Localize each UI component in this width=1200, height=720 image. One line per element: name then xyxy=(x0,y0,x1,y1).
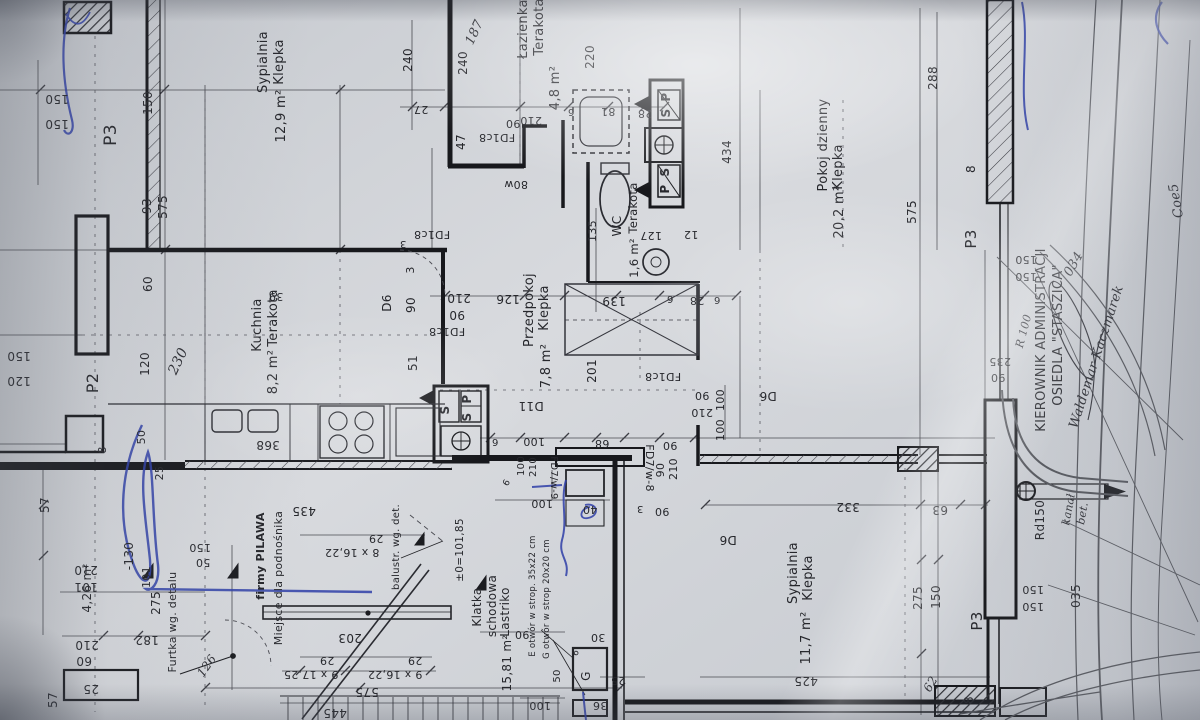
dim: 332 xyxy=(836,500,860,514)
door-code: D6 xyxy=(380,294,394,311)
shaft-label: G xyxy=(579,671,593,681)
handwritten-note: bet. xyxy=(1074,501,1091,526)
dim: 101 xyxy=(140,566,153,588)
dim: 288 xyxy=(926,66,940,90)
axis-label: P2 xyxy=(83,373,102,393)
dim: 210 xyxy=(520,114,542,127)
dim: 210 xyxy=(667,458,680,480)
dim: 150 xyxy=(7,349,31,363)
door-code: FD7/w-9 xyxy=(548,456,559,499)
dim: 100 xyxy=(714,389,727,411)
dim: 120 xyxy=(138,352,152,376)
dim: 210 xyxy=(74,563,98,577)
dim: 3 xyxy=(404,266,417,273)
dim: 275 xyxy=(149,591,163,615)
room-label: Przedpokoj xyxy=(522,273,537,347)
dim: 8 xyxy=(96,446,109,453)
axis-label: P3 xyxy=(962,229,980,248)
dim: 25 xyxy=(83,682,99,696)
dim: 100 xyxy=(523,435,545,448)
dim: 90 xyxy=(695,389,710,402)
room-area: 15,81 m² xyxy=(500,634,514,691)
dim: 368 xyxy=(256,438,280,452)
dim: 93 xyxy=(140,198,154,214)
handwritten-dim: 187 xyxy=(463,17,488,47)
dim: 150 xyxy=(45,117,69,131)
dim: 60 xyxy=(76,654,92,668)
note: Miejsce dla podnośnika xyxy=(272,511,285,645)
pipe-label: Rd150 xyxy=(1033,500,1047,540)
dim: 28 xyxy=(638,107,653,120)
dim: 575 xyxy=(156,195,170,219)
dim: 445 xyxy=(323,706,347,720)
axis-label: P3 xyxy=(968,611,986,630)
dim: 63 xyxy=(932,503,948,517)
kitchen-shaft xyxy=(419,386,488,462)
dim: 36 xyxy=(593,699,608,712)
dim: 120 xyxy=(7,374,31,388)
dim: 150 xyxy=(141,91,155,115)
dim: 035 xyxy=(1069,584,1083,608)
room-label: schodowa xyxy=(485,575,499,637)
dim: 100 xyxy=(529,699,551,712)
dim: 40 xyxy=(583,503,598,516)
dim: 6 xyxy=(501,478,513,488)
room-floor: Klepka xyxy=(272,39,287,84)
dim: 100 xyxy=(531,497,553,510)
door-code: D11 xyxy=(518,399,543,413)
dim: 150 xyxy=(1022,583,1044,596)
dim: 150 xyxy=(929,585,943,609)
room-label: Klatka xyxy=(470,587,484,626)
kitchen-sink xyxy=(212,410,242,432)
washbasin xyxy=(643,249,669,275)
dim: 3 xyxy=(637,503,644,514)
room-area: 4,8 m² xyxy=(548,66,563,110)
dim: 100 xyxy=(714,419,727,441)
dim: 57 xyxy=(38,497,52,513)
dim: 101 xyxy=(74,580,98,594)
dim: 150 xyxy=(1015,270,1037,283)
room-floor: Klepka xyxy=(801,555,816,600)
door-code: FD1c8 xyxy=(645,370,681,383)
dim: 201 xyxy=(585,359,599,383)
dim: 57 xyxy=(46,692,60,708)
room-label: Sypialnia xyxy=(786,542,801,604)
stair-dim: 9 x 17,25 xyxy=(284,668,339,681)
shaft-label: S xyxy=(658,168,672,177)
dim: 90 xyxy=(515,628,530,641)
dim: 80w xyxy=(504,178,528,191)
dim: 6 xyxy=(714,294,721,305)
dim: 150 xyxy=(189,541,211,554)
dimension-ticks xyxy=(36,85,990,692)
dim: 6 xyxy=(568,106,575,117)
dim: 6 xyxy=(667,293,674,304)
room-label: Sypialnia xyxy=(256,31,271,93)
dim: 50 xyxy=(196,556,211,569)
shaft-label: P xyxy=(659,92,673,101)
dim: 29 xyxy=(408,654,423,667)
room-label: Pokoj dzienny xyxy=(816,99,831,192)
dim: 150 xyxy=(1015,253,1037,266)
floor-plan-drawing: 150150P3150SypialniaKlepka12,9 m²9357560… xyxy=(0,0,1200,720)
dim: 90 xyxy=(655,505,670,518)
stair-dim: 9 x 16,22 xyxy=(368,668,423,681)
dim: 425 xyxy=(794,674,818,688)
room-floor: Klepka xyxy=(537,285,552,330)
note: firmy PILAWA xyxy=(254,512,267,600)
shaft-label: P xyxy=(658,184,672,193)
dim: 150 xyxy=(45,92,69,106)
handwritten-note: Coe5 xyxy=(1166,182,1187,219)
dim: 51 xyxy=(406,355,420,371)
room-label: WC xyxy=(610,216,624,237)
room-floor: Lastriko xyxy=(498,587,512,637)
dim: 126 xyxy=(496,292,520,306)
shaft-label: S xyxy=(659,109,673,118)
dim: 8 xyxy=(962,696,976,704)
dim: 203 xyxy=(338,631,362,645)
dim: 29 xyxy=(320,654,335,667)
dim: 100 xyxy=(516,456,527,476)
dim: 90 xyxy=(506,117,521,130)
dim: 240 xyxy=(456,51,470,75)
dim: 27 xyxy=(414,103,429,116)
dim: 90 xyxy=(663,439,678,452)
wardrobe-crossed xyxy=(565,284,698,355)
door-code: FD1c8 xyxy=(479,131,515,144)
door-code: FD1c8 xyxy=(429,325,465,338)
handwritten-note: R 100 xyxy=(1013,313,1035,350)
dim: 435 xyxy=(292,504,316,518)
dim: 210 xyxy=(447,291,471,305)
dim: 50 xyxy=(552,669,563,682)
dim: 90 xyxy=(449,308,465,322)
dim: 60 xyxy=(141,276,155,292)
dim: 68 xyxy=(595,437,610,450)
dim: 220 xyxy=(583,45,597,69)
dim: 575 xyxy=(355,685,379,699)
dim: 50 xyxy=(135,430,148,445)
stair-dim: 8 x 16,22 xyxy=(325,546,380,559)
room-area: 8,2 m² xyxy=(266,350,281,394)
dim: 47 xyxy=(454,134,468,150)
dim: 210 xyxy=(691,406,713,419)
dim: 29 xyxy=(369,532,384,545)
dim: 90 xyxy=(404,297,418,313)
shaft-label: S xyxy=(460,413,474,422)
room-label: Kuchnia xyxy=(250,298,265,351)
note: G otwór w strop 20x20 cm xyxy=(541,539,552,659)
dim: 90 xyxy=(991,371,1006,384)
dim: 210 xyxy=(75,638,99,652)
handwritten-dim: 230 xyxy=(165,345,192,378)
room-area: 7,8 m² xyxy=(539,344,554,388)
door-code: D6 xyxy=(719,533,736,547)
dim: 235 xyxy=(989,355,1011,368)
dim: 275 xyxy=(911,586,925,610)
handwritten-dim: 126 xyxy=(194,652,219,680)
room-area: 1,6 m² xyxy=(627,238,641,278)
dim: 30 xyxy=(591,631,606,644)
dim: 39 xyxy=(269,290,284,303)
dim: 150 xyxy=(1022,600,1044,613)
stamp-line: OSIEDLA "STASZICA" xyxy=(1051,264,1066,406)
floor-plan-photo: 150150P3150SypialniaKlepka12,9 m²9357560… xyxy=(0,0,1200,720)
dim: 6 xyxy=(492,436,499,447)
dim: 139 xyxy=(602,294,626,308)
dim: 135 xyxy=(586,220,599,242)
room-area: 11,7 m² xyxy=(799,611,814,664)
dim: 182 xyxy=(135,633,159,647)
dim: 127 xyxy=(640,229,662,242)
note: balustr. wg. det. xyxy=(391,504,402,590)
bathtub xyxy=(573,90,629,153)
room-floor: Terakota xyxy=(532,0,547,57)
stove xyxy=(320,406,384,458)
room-area: 12,9 m² xyxy=(274,89,289,142)
axis-label: P3 xyxy=(101,124,121,146)
dim: 8 xyxy=(964,165,978,173)
room-floor: Terakota xyxy=(626,182,640,234)
dim: 3 xyxy=(400,238,407,249)
level-mark: ±0=101,85 xyxy=(454,518,466,582)
dim: 575 xyxy=(905,200,919,224)
dim: 240 xyxy=(401,48,415,72)
shaft-label: S xyxy=(438,406,452,415)
dim: 210 xyxy=(528,457,539,477)
dim: 81 xyxy=(601,105,616,118)
note: Furtka wg. detalu xyxy=(166,572,179,673)
room-floor: Klepka xyxy=(831,144,846,189)
dim: 28 xyxy=(690,294,705,307)
shaft-label: P xyxy=(460,394,474,403)
dim: 25 xyxy=(611,674,626,687)
dim: 25 xyxy=(153,466,166,481)
stairs xyxy=(280,564,560,720)
door-code: FD1c8 xyxy=(414,228,450,241)
level-mark: -130 xyxy=(122,542,136,570)
dim: 434 xyxy=(720,140,734,164)
room-area: 20,2 m² xyxy=(832,185,847,238)
kitchen-sink xyxy=(248,410,278,432)
dim: 90 xyxy=(654,463,667,478)
room-label: Łazienka xyxy=(516,0,531,60)
door-code: D6 xyxy=(759,389,776,403)
dim: 12 xyxy=(684,228,699,241)
